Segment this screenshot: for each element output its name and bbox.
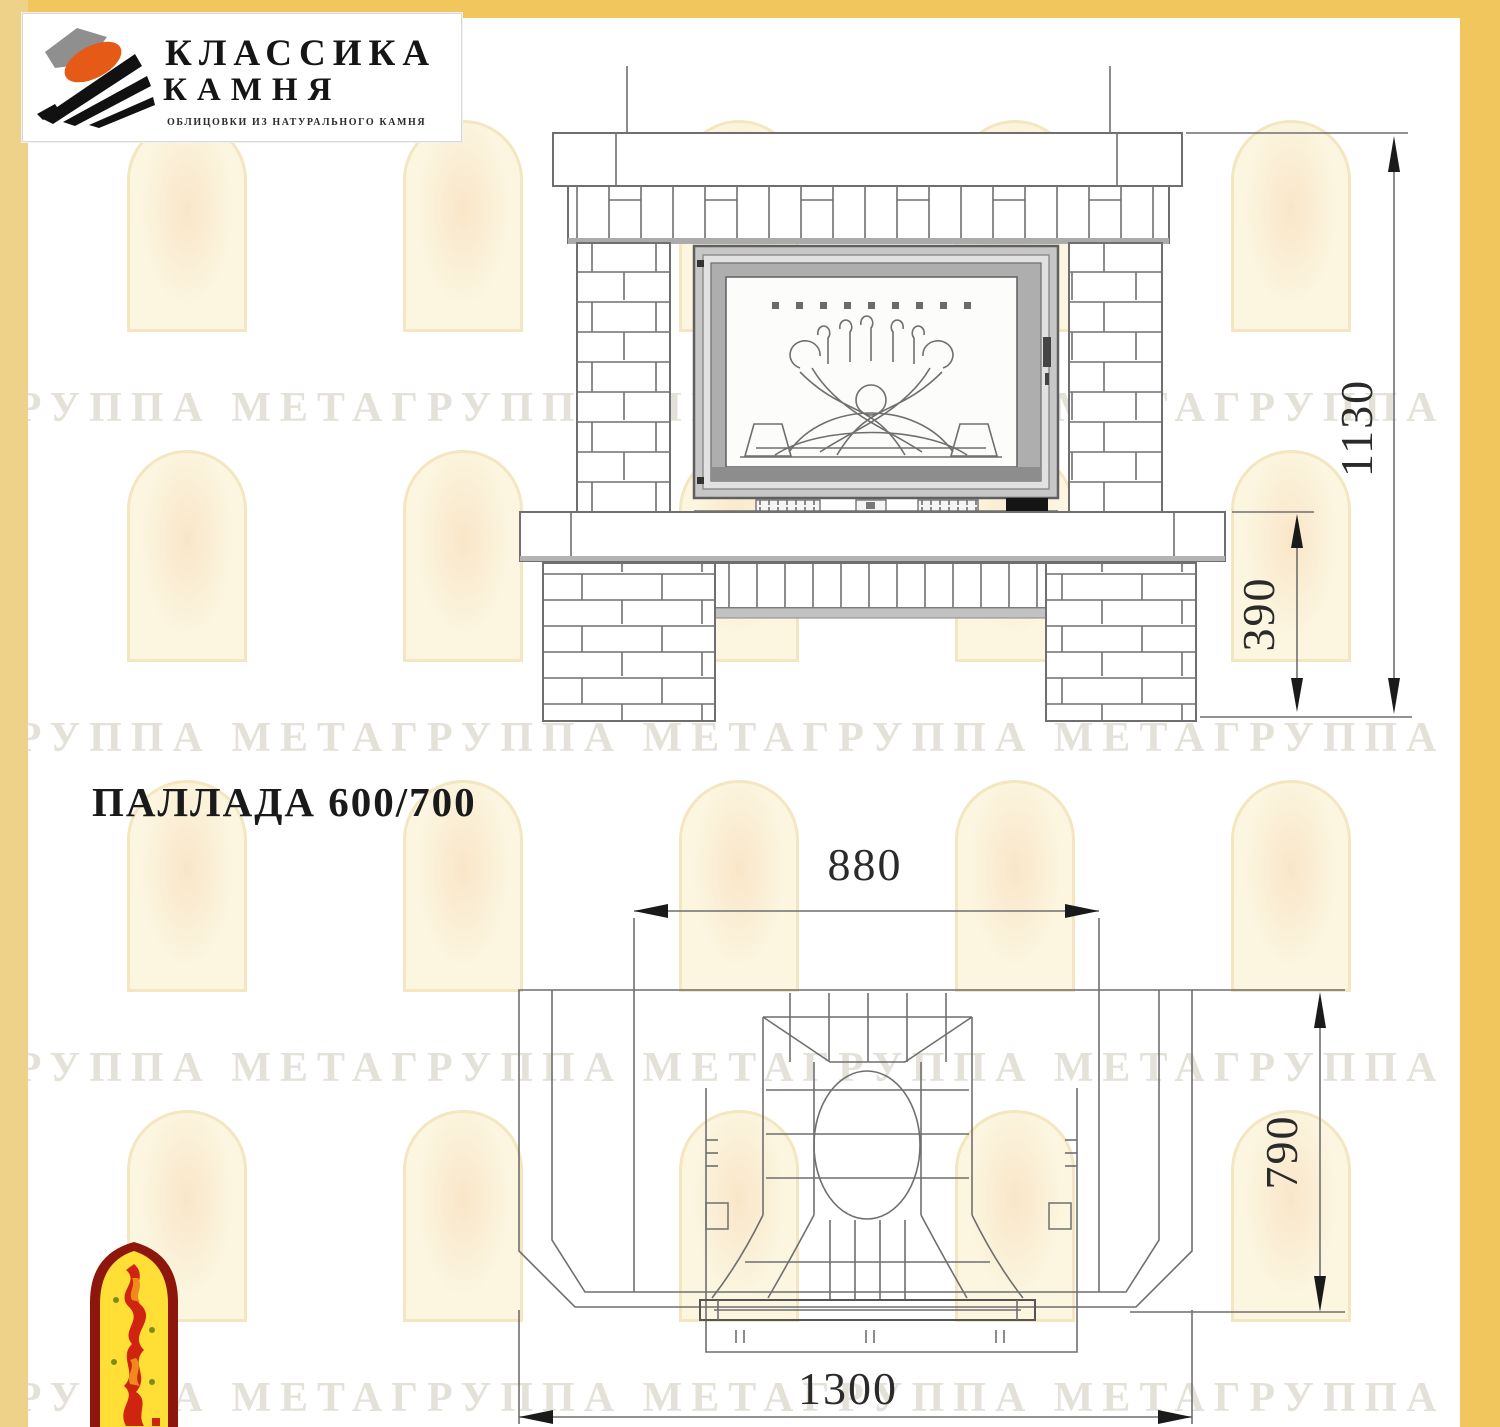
fireplace-technical-drawing: 1130 390 880: [0, 0, 1500, 1427]
meta-group-emblem-icon: [86, 1238, 182, 1427]
flue-opening: [814, 1071, 920, 1219]
base-pedestal-right: [1046, 563, 1196, 721]
dim-label-880: 880: [828, 839, 903, 890]
dim-label-1130: 1130: [1331, 379, 1382, 477]
mantel-shelf: [553, 133, 1182, 186]
logo-mark-icon: [35, 22, 165, 130]
hinge-bottom: [697, 477, 704, 484]
brick-pier-left: [577, 243, 670, 512]
dimension-total-height: 1130: [1186, 133, 1412, 717]
insert-feet-marks: [736, 1330, 1004, 1343]
plan-niche-walls: [706, 1088, 1077, 1352]
brick-pier-right: [1069, 243, 1162, 512]
vent-strip: [694, 498, 1058, 512]
dimension-total-width: 1300: [519, 1310, 1192, 1424]
upper-soldier-course: [568, 186, 1169, 244]
logo-title-line2: КАМНЯ: [163, 72, 341, 109]
plan-insert: [700, 993, 1035, 1343]
hearth-shelf: [520, 512, 1225, 561]
scan-border-left: [0, 0, 28, 1427]
dim-label-1300: 1300: [798, 1363, 898, 1414]
ashpan-vent: [1006, 498, 1048, 512]
logo-subtitle: ОБЛИЦОВКИ ИЗ НАТУРАЛЬНОГО КАМНЯ: [167, 117, 426, 128]
dimension-depth: 790: [1130, 990, 1345, 1312]
dim-label-390: 390: [1233, 577, 1284, 652]
hinge-top: [697, 260, 704, 267]
dimension-base-height: 390: [1232, 512, 1314, 712]
model-title: ПАЛЛАДА 600/700: [92, 778, 477, 826]
base-pedestal-left: [543, 563, 715, 721]
door-handle: [1043, 337, 1051, 367]
scanned-fireplace-drawing-page: ГРУППА МЕТАГРУППА МЕТАГРУППА МЕТАГРУППА …: [0, 0, 1500, 1427]
vent-dots: [772, 302, 971, 309]
logo-title-line1: КЛАССИКА: [165, 32, 436, 75]
scan-border-right: [1460, 0, 1500, 1427]
dimension-firebox-width: 880: [634, 839, 1099, 990]
company-logo: КЛАССИКА КАМНЯ ОБЛИЦОВКИ ИЗ НАТУРАЛЬНОГО…: [22, 13, 462, 142]
lower-soldier-course: [715, 563, 1046, 618]
plan-view: 880: [519, 839, 1345, 1424]
firebox-insert: [694, 246, 1058, 512]
dim-label-790: 790: [1256, 1115, 1307, 1190]
front-elevation: 1130 390: [520, 66, 1412, 721]
